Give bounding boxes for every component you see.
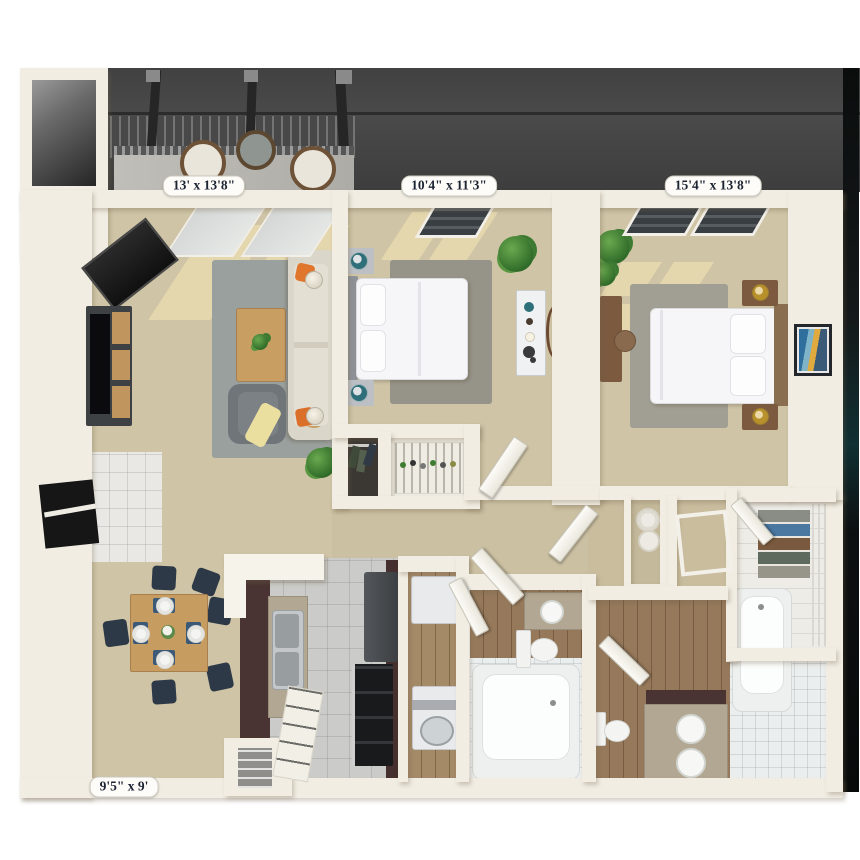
folded-clothes [758, 566, 810, 578]
bathtub-basin [482, 674, 570, 760]
plate [187, 625, 205, 643]
closet-top-wall [332, 424, 480, 438]
sink-basin [275, 652, 299, 686]
washer-door [420, 716, 454, 746]
dining-chair [206, 662, 235, 692]
nightstand-lamp [752, 284, 769, 301]
duvet-fold [418, 282, 421, 376]
bed-pillow [360, 330, 386, 372]
exterior-shadow-strip [843, 68, 859, 792]
linen-closet-wall [624, 496, 631, 592]
toilet-bowl [604, 720, 630, 742]
plate [156, 651, 174, 669]
bathroom-2-sink [676, 748, 706, 778]
bed-pillow [730, 314, 766, 354]
entry-tile [92, 452, 162, 562]
nightstand-lamp [350, 384, 368, 402]
refrigerator [364, 572, 398, 662]
plate [156, 597, 174, 615]
plate [132, 625, 150, 643]
toilet-bowl [530, 638, 558, 662]
closet-wire-rack [394, 442, 464, 494]
duvet-fold [660, 310, 663, 400]
dimension-label-living: 13' x 13'8" [163, 176, 245, 197]
bedroom-2-headboard [774, 304, 789, 406]
patio-chair [290, 146, 336, 192]
toilet-tank [516, 630, 531, 668]
bathtub-drain [550, 700, 556, 706]
coffee-table-plant [252, 334, 268, 350]
bedroom1-bedroom2-wall [552, 190, 600, 505]
bathroom-1-top-wall [468, 574, 584, 590]
table-flowers [161, 625, 175, 639]
linen-towels [636, 508, 660, 532]
dimension-label-bedroom-2: 15'4" x 13'8" [665, 176, 762, 197]
tv-stand-shelves [112, 312, 130, 418]
dresser-item [526, 318, 533, 325]
washer-control-band [412, 700, 458, 710]
shoes [400, 462, 406, 468]
range-stove [352, 664, 393, 766]
walk-in-closet-left-wall [726, 488, 737, 662]
closet-bottom-wall [332, 496, 480, 509]
dresser-item [523, 346, 535, 358]
living-bedroom1-wall [332, 190, 348, 508]
dimension-label-dining: 9'5" x 9' [90, 777, 159, 798]
bathtub-2-basin [740, 596, 784, 694]
bathtub-2-drain [758, 604, 764, 610]
folded-clothes [758, 510, 810, 524]
table-lamp [306, 407, 324, 425]
dining-chair [151, 565, 176, 590]
pergola-beam-cap [244, 70, 258, 82]
walk-in-closet-bottom-wall [726, 648, 836, 661]
roof-beam-shadow [20, 112, 860, 115]
kitchen-laundry-wall [398, 556, 408, 782]
linen-closet-wall [660, 496, 668, 592]
chimney-shaft [32, 80, 96, 186]
nightstand-lamp [752, 408, 769, 425]
bathroom-1-right-wall [582, 574, 596, 782]
bedroom-1-plant [498, 236, 534, 272]
bathroom-mirror [675, 509, 733, 576]
tv-screen [90, 314, 110, 414]
bathroom-2-sink [676, 714, 706, 744]
patio-table [236, 130, 276, 170]
wall-art [794, 324, 832, 376]
hall-2-wall [668, 496, 677, 600]
bathroom-1-sink [540, 600, 564, 624]
closet-wire-shelving [812, 504, 826, 646]
right-wall [826, 492, 843, 792]
pergola-beam-cap [146, 70, 160, 82]
bed-pillow [360, 284, 386, 326]
closet-divider-wall [378, 432, 391, 504]
dresser-vase [524, 302, 534, 312]
floor-plan: 13' x 13'8" 10'4" x 11'3" 15'4" x 13'8" … [0, 0, 860, 860]
bathroom-2-top-wall [588, 586, 728, 600]
table-lamp [305, 271, 323, 289]
folded-clothes [758, 552, 810, 566]
linen-towels [638, 530, 660, 552]
pantry-shelves [238, 748, 272, 788]
dimension-label-bedroom-1: 10'4" x 11'3" [401, 176, 497, 197]
nightstand-lamp [350, 252, 368, 270]
breakfast-bar-counter [224, 554, 246, 618]
dresser-item [525, 332, 535, 342]
pergola-beam-cap [336, 70, 352, 84]
desk-chair [614, 330, 636, 352]
dining-chair [102, 618, 129, 647]
sink-basin [275, 614, 299, 648]
dining-chair [151, 679, 177, 705]
bed-pillow [730, 356, 766, 396]
